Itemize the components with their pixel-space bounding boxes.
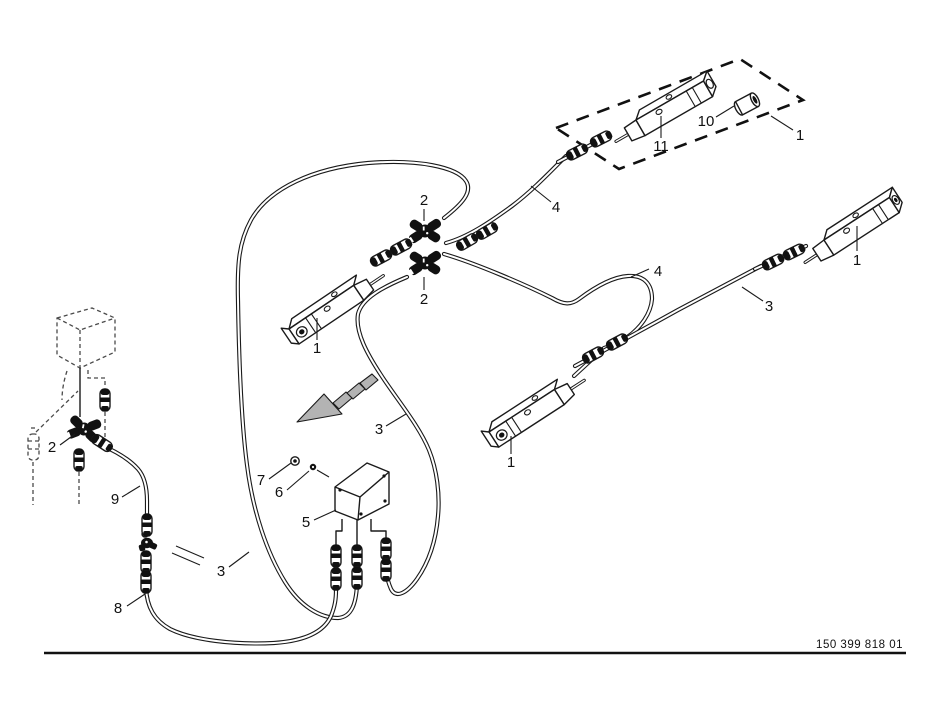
- connector: [761, 252, 786, 271]
- callout-cable-nine: 9: [111, 491, 119, 508]
- cables-group: [101, 139, 806, 643]
- connector: [331, 568, 341, 591]
- callout-mounting-plate: 1: [796, 127, 804, 144]
- connector: [782, 242, 807, 261]
- callout-work-light-middle: 1: [507, 454, 515, 471]
- connector: [369, 248, 394, 267]
- connector: [142, 514, 152, 537]
- connector: [90, 433, 114, 454]
- callout-cable-bottom: 3: [217, 563, 225, 580]
- connector: [605, 332, 630, 351]
- connector: [352, 567, 362, 590]
- junction-box-group: [335, 463, 389, 548]
- callout-cable-loop: 4: [654, 263, 662, 280]
- callout-cable-top: 4: [552, 199, 560, 216]
- connector: [565, 142, 590, 161]
- connector: [381, 538, 391, 561]
- connector: [589, 129, 614, 148]
- wiring-parts-diagram: 11 10 1 2 4 2 4 3 1 1 1 3 2 9 7 6 5 3 8 …: [0, 0, 950, 725]
- y-connector-top: [407, 217, 443, 245]
- callout-cable-right: 3: [765, 298, 773, 315]
- connector: [100, 389, 110, 412]
- connector: [352, 545, 362, 568]
- y-connector-bottom: [407, 249, 443, 277]
- callout-light-bar-on-plate: 11: [653, 138, 669, 155]
- connector: [381, 559, 391, 582]
- connector: [141, 571, 151, 594]
- callout-work-light-right: 1: [853, 252, 861, 269]
- connector: [581, 345, 606, 364]
- work-light-right: [797, 187, 906, 270]
- callout-cable-middle: 3: [375, 421, 383, 438]
- parts-diagram-page: 11 10 1 2 4 2 4 3 1 1 1 3 2 9 7 6 5 3 8 …: [0, 0, 950, 725]
- connector: [331, 545, 341, 568]
- screws-group: [291, 457, 329, 477]
- callout-screw-seven: 7: [257, 472, 265, 489]
- phantom-connector: [28, 434, 39, 460]
- callout-work-light-left: 1: [313, 340, 321, 357]
- work-light-middle: [480, 367, 589, 450]
- callout-labels: 11 10 1 2 4 2 4 3 1 1 1 3 2 9 7 6 5 3 8: [48, 113, 861, 617]
- callout-junction-box: 5: [302, 514, 310, 531]
- grommet: [733, 92, 762, 117]
- cable-3-middle: [358, 277, 439, 594]
- work-light-left: [280, 263, 388, 347]
- callout-y-connector-left: 2: [48, 439, 56, 456]
- phantom-box-outline: [57, 308, 115, 368]
- leader-lines: [60, 106, 857, 606]
- drawing-number: 150 399 818 01: [816, 639, 903, 651]
- callout-y-connector-bottom: 2: [420, 291, 428, 308]
- connectors-group: [74, 129, 807, 593]
- callout-grommet: 10: [698, 113, 715, 130]
- junction-box: [335, 463, 389, 520]
- connector: [74, 449, 84, 472]
- connector: [141, 551, 151, 574]
- callout-cable-eight: 8: [114, 600, 122, 617]
- connector: [389, 237, 414, 256]
- callout-y-connector-top: 2: [420, 192, 428, 209]
- callout-screw-six: 6: [275, 484, 283, 501]
- direction-arrow: [297, 374, 378, 422]
